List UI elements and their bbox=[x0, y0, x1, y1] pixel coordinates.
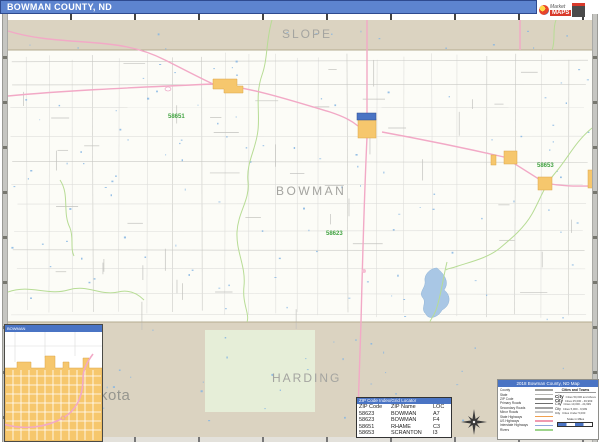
inset-header: BOWMAN bbox=[5, 325, 102, 332]
county-label: BOWMAN bbox=[276, 184, 346, 198]
legend-swatch bbox=[535, 403, 553, 405]
city-area-east2 bbox=[538, 177, 552, 190]
inset-canvas bbox=[5, 332, 102, 441]
state-label-partial: kota bbox=[100, 387, 130, 404]
scale-bar bbox=[557, 422, 593, 427]
zip-label-58623: 58623 bbox=[326, 231, 343, 237]
title-bar: BOWMAN COUNTY, ND bbox=[0, 0, 537, 14]
legend-boundaries: County State ZIP Code Primary Roads Seco… bbox=[500, 388, 553, 432]
inset-city-area bbox=[5, 356, 102, 441]
legend: 2018 Bowman County, ND Map County State … bbox=[497, 379, 599, 440]
legend-item: Rivers bbox=[500, 428, 553, 432]
city-bowman-label-box bbox=[357, 113, 376, 120]
inset-route-marker bbox=[61, 416, 65, 420]
city-area-east1b bbox=[491, 155, 496, 165]
legend-swatch bbox=[535, 394, 553, 396]
zip-label-58651: 58651 bbox=[168, 114, 185, 120]
city-inset-map: BOWMAN bbox=[4, 324, 103, 442]
map-title: BOWMAN COUNTY, ND bbox=[7, 2, 112, 12]
legend-title: 2018 Bowman County, ND Map bbox=[498, 380, 598, 387]
brand-word2: MAPS bbox=[550, 10, 571, 16]
brand-logo: Market MAPS bbox=[539, 1, 599, 19]
cell-zip: 58653 bbox=[359, 430, 391, 437]
legend-swatch bbox=[535, 411, 553, 413]
grid-ruler-right bbox=[592, 14, 598, 442]
legend-swatch bbox=[535, 416, 553, 418]
legend-swatch bbox=[535, 420, 553, 422]
route-marker bbox=[362, 269, 366, 273]
cell-name: SCRANTON bbox=[391, 430, 433, 437]
city-bowman bbox=[358, 119, 376, 138]
legend-body: County State ZIP Code Primary Roads Seco… bbox=[498, 387, 598, 433]
scale-label: Scale in Miles bbox=[555, 417, 596, 421]
brand-badge bbox=[572, 3, 585, 17]
cell-loc: I3 bbox=[433, 430, 449, 437]
zip-index-table: ZIP Code Index/Grid Locator ZIP Code ZIP… bbox=[356, 397, 452, 438]
zip-table-row: 58653 SCRANTON I3 bbox=[357, 430, 451, 437]
compass-rose-icon bbox=[459, 407, 489, 437]
zip-label-58653: 58653 bbox=[537, 163, 554, 169]
neighbor-label-harding: HARDING bbox=[272, 371, 341, 385]
legend-swatch bbox=[535, 398, 553, 400]
grid-ruler-top bbox=[8, 14, 592, 20]
scale-bar-group: Scale in Miles bbox=[555, 417, 596, 427]
legend-city-row: CityCities Under 5,000 bbox=[555, 411, 596, 415]
legend-swatch bbox=[535, 389, 553, 391]
legend-swatch bbox=[535, 425, 553, 427]
brand-wordmark: Market MAPS bbox=[550, 5, 571, 16]
inset-title: BOWMAN bbox=[7, 325, 25, 332]
cities-header: Cities and Towns bbox=[555, 388, 596, 393]
city-area-east1 bbox=[504, 151, 517, 164]
route-shield-marker bbox=[165, 87, 171, 91]
legend-swatch bbox=[535, 429, 553, 431]
wall-map-page: BOWMAN COUNTY, ND Market MAPS SLOPE BOWM… bbox=[0, 0, 600, 442]
legend-cities: Cities and Towns CityCities 50,000 and A… bbox=[553, 388, 596, 432]
legend-swatch bbox=[535, 407, 553, 409]
brand-burst-icon bbox=[539, 5, 549, 15]
neighbor-label-slope: SLOPE bbox=[282, 27, 332, 41]
